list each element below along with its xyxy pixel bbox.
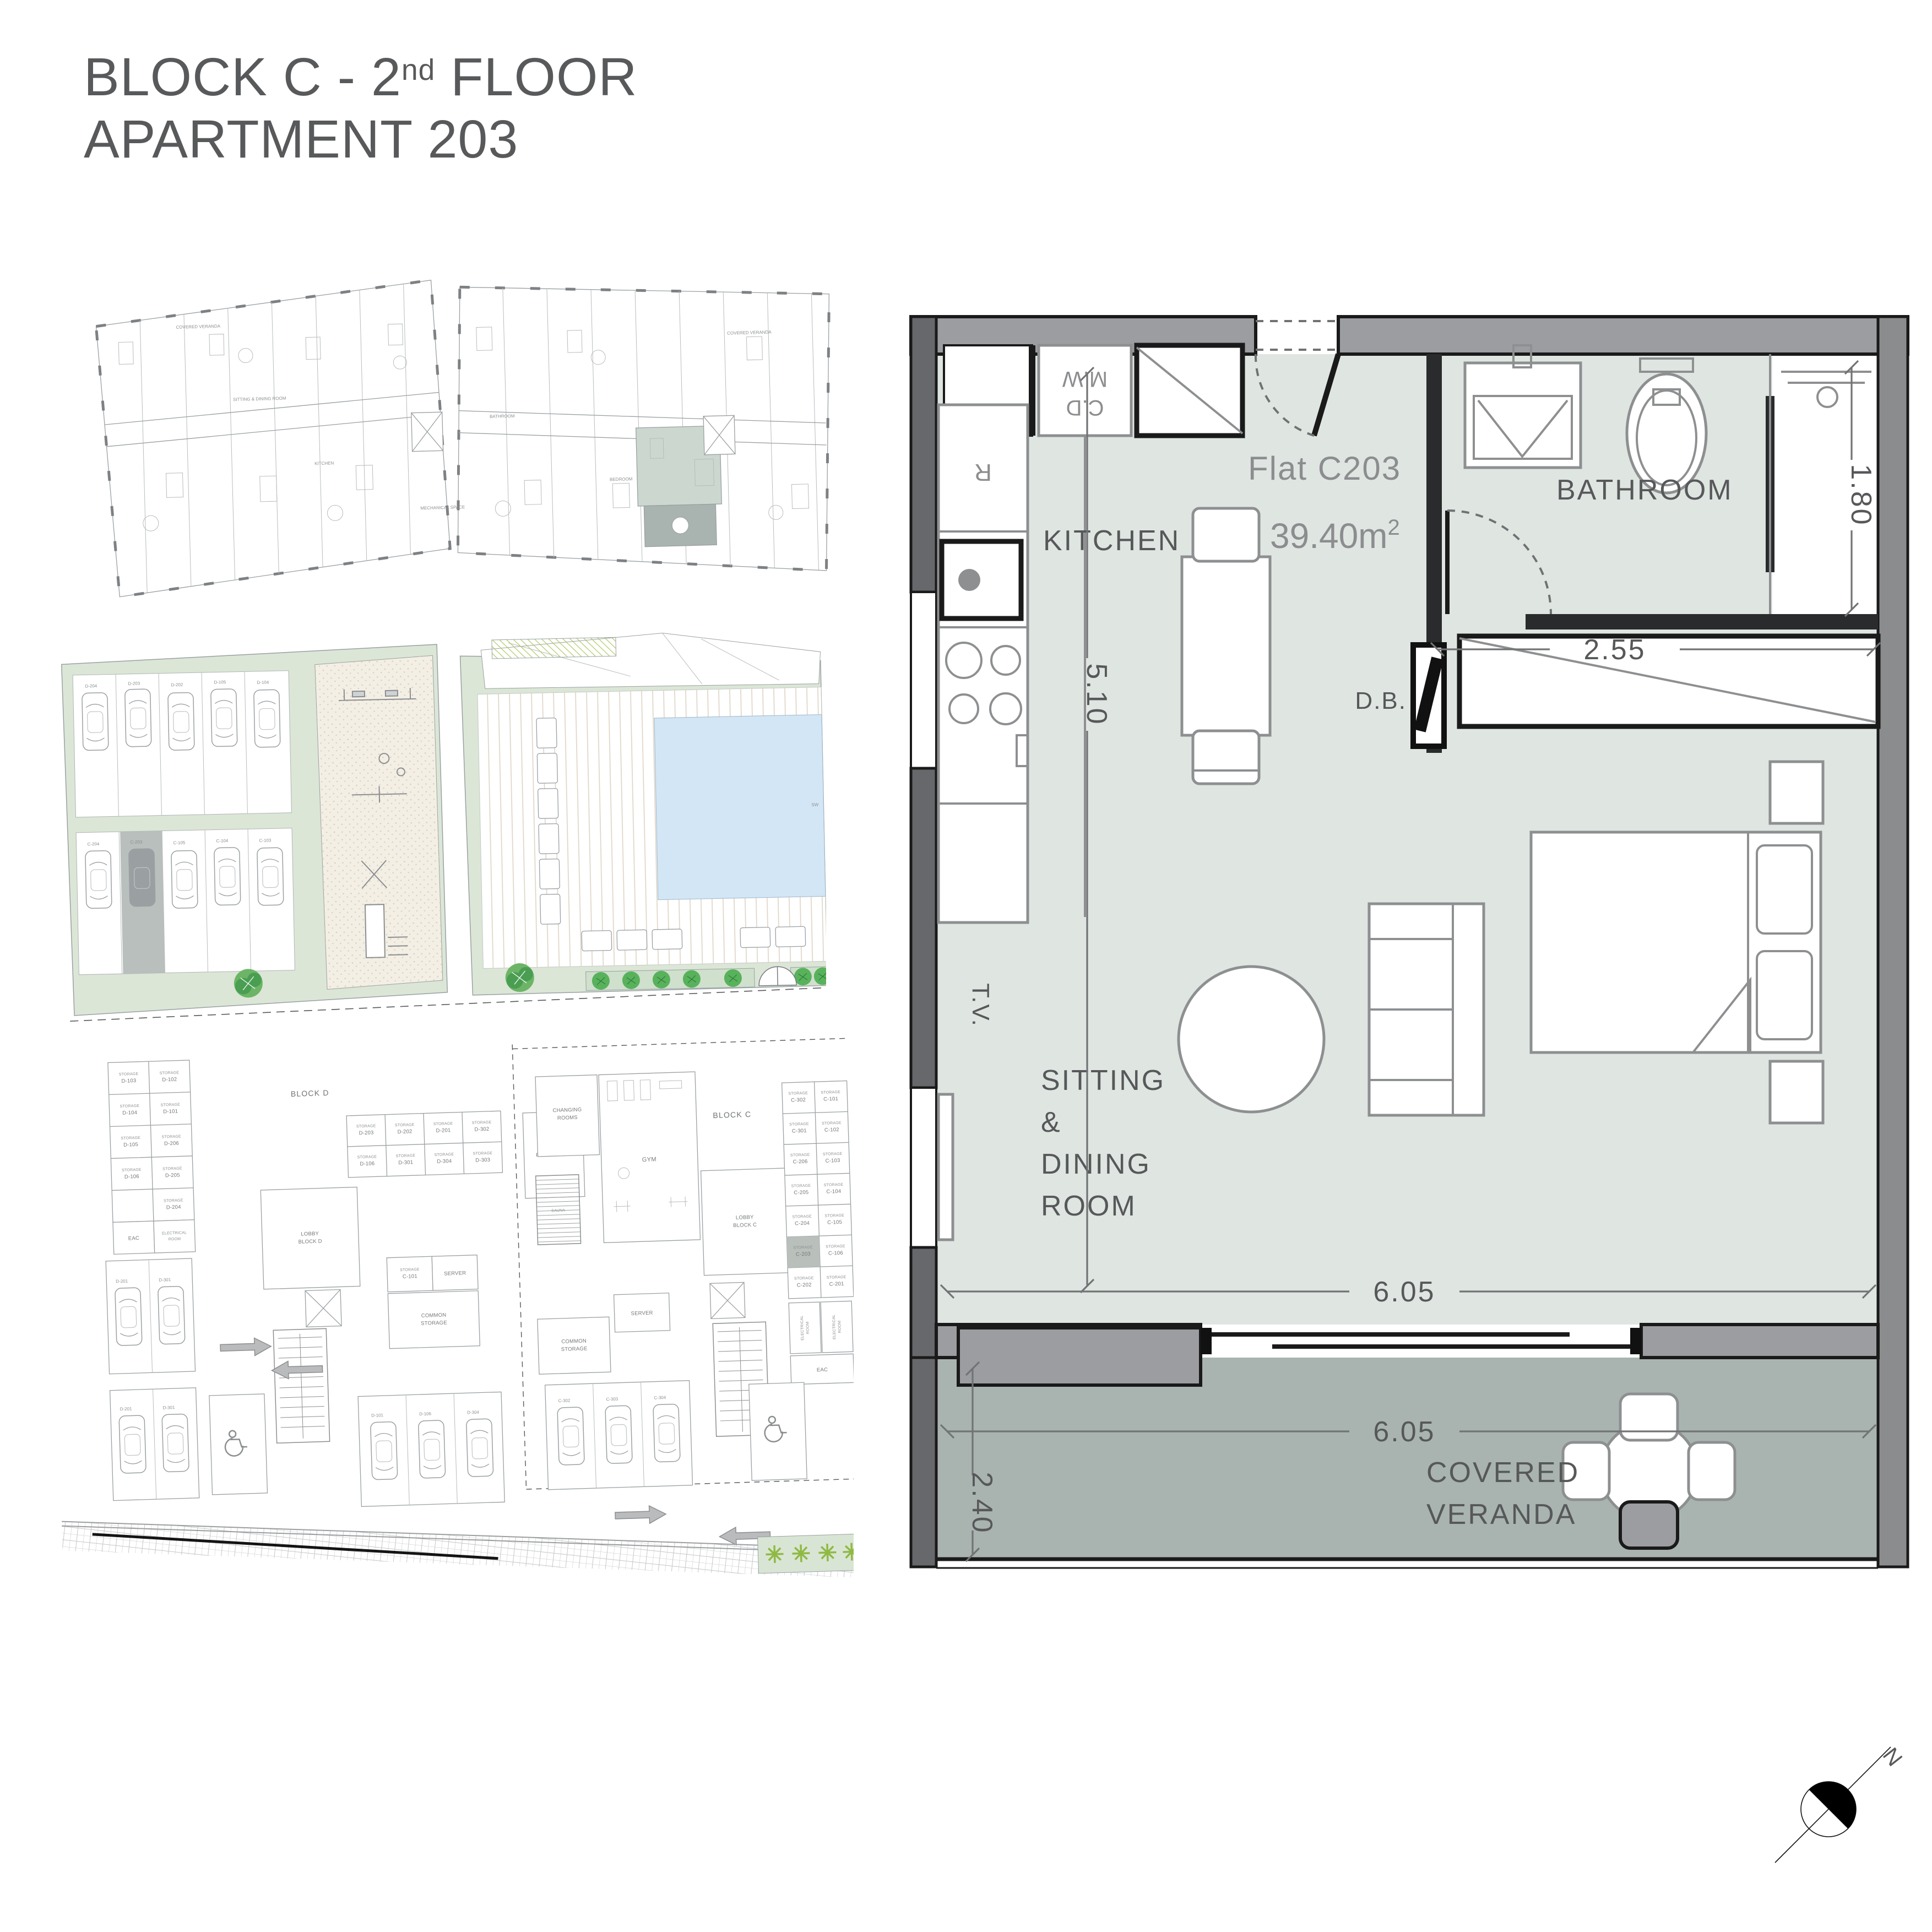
stall-label: D-104 — [257, 680, 269, 685]
thumb-label: SITTING & DINING ROOM — [233, 396, 286, 403]
lobby-c: LOBBYBLOCK C — [701, 1168, 790, 1276]
flat-number-label: Flat C203 — [1248, 450, 1401, 487]
svg-text:STORAGEC-203: STORAGEC-203 — [793, 1246, 813, 1258]
svg-text:STORAGEC-103: STORAGEC-103 — [823, 1152, 843, 1164]
storage-grid-c: STORAGEC-302 STORAGEC-101 STORAGEC-301 S… — [782, 1081, 854, 1299]
cooker-dryer-label: C.D — [1066, 395, 1104, 420]
svg-text:C-302: C-302 — [558, 1398, 571, 1403]
basement-plan-thumbnail: BLOCK D STORAGED-103 STORAGED-102 STORAG… — [55, 1013, 854, 1597]
svg-text:STORAGEC-101: STORAGEC-101 — [400, 1268, 420, 1280]
roadside-plants — [757, 1534, 854, 1573]
area-label: 39.40m2 — [1270, 515, 1400, 556]
sitting-room-label: SITTING — [1041, 1065, 1165, 1097]
svg-text:STORAGED-304: STORAGED-304 — [435, 1153, 454, 1165]
svg-text:SERVER: SERVER — [631, 1310, 653, 1317]
thumb-label: BATHROOM — [490, 414, 515, 419]
svg-text:STORAGED-101: STORAGED-101 — [160, 1103, 180, 1115]
stall-label: C-104 — [216, 838, 229, 843]
sofa — [1369, 904, 1484, 1115]
svg-text:STORAGEC-101: STORAGEC-101 — [821, 1090, 840, 1103]
kitchen-label: KITCHEN — [1043, 525, 1180, 557]
svg-text:STORAGEC-106: STORAGEC-106 — [826, 1245, 845, 1257]
distribution-board-label: D.B. — [1355, 687, 1407, 714]
svg-text:STORAGEC-302: STORAGEC-302 — [788, 1092, 808, 1104]
stall-label: C-103 — [259, 838, 272, 843]
changing-rooms: CHANGINGROOMS — [535, 1075, 599, 1157]
swimming-pool — [654, 714, 826, 899]
block-c: BLOCK C CHANGINGROOMS SAUNA GYM LOBBYBLO… — [530, 1067, 854, 1551]
svg-text:D-201: D-201 — [120, 1406, 132, 1412]
svg-text:2.40: 2.40 — [966, 1472, 998, 1534]
parking-c: C-302 C-303 C-304 — [545, 1377, 807, 1490]
svg-text:STORAGEC-201: STORAGEC-201 — [827, 1276, 846, 1288]
svg-text:C-303: C-303 — [606, 1397, 618, 1402]
nightstand — [1770, 1061, 1823, 1123]
stall-label: D-202 — [171, 682, 183, 687]
title-block-prefix: BLOCK C - 2 — [84, 47, 401, 107]
svg-text:1.80: 1.80 — [1845, 464, 1877, 526]
playground — [315, 655, 443, 989]
tv-wall-niche — [911, 1088, 936, 1247]
thumb-label: COVERED VERANDA — [727, 330, 772, 336]
title-line-apartment: APARTMENT 203 — [84, 108, 637, 171]
svg-text:2.55: 2.55 — [1583, 634, 1646, 666]
stall-label: C-105 — [173, 840, 186, 845]
dining-table-chairs — [1182, 508, 1270, 784]
tv-label: T.V. — [967, 983, 994, 1027]
svg-text:STORAGEC-204: STORAGEC-204 — [792, 1215, 812, 1227]
road — [62, 1496, 854, 1597]
svg-text:STORAGEC-105: STORAGEC-105 — [824, 1214, 844, 1226]
common-server-c: COMMONSTORAGE SERVER — [537, 1293, 671, 1374]
nightstand — [1770, 762, 1823, 823]
lobby-d: LOBBYBLOCK D — [261, 1187, 360, 1289]
stall-label: C-203 — [130, 839, 143, 844]
sliding-window — [1201, 1328, 1641, 1354]
svg-text:STORAGED-106: STORAGED-106 — [357, 1155, 377, 1167]
svg-text:EAC: EAC — [817, 1367, 828, 1374]
svg-text:SAUNA: SAUNA — [551, 1209, 565, 1213]
svg-text:VERANDA: VERANDA — [1426, 1499, 1576, 1531]
svg-text:STORAGED-206: STORAGED-206 — [161, 1135, 181, 1147]
round-rug — [1179, 967, 1324, 1112]
svg-text:SERVER: SERVER — [444, 1270, 466, 1277]
fridge-label: R — [973, 459, 992, 486]
veranda-floor — [936, 1358, 1878, 1559]
svg-text:ROOM: ROOM — [1041, 1190, 1137, 1222]
storage-c101-server-common: STORAGEC-101 SERVER COMMONSTORAGE — [387, 1255, 480, 1349]
parking-row-top: D-204 D-203 D-202 D-105 D-104 — [73, 671, 291, 817]
title-line-block: BLOCK C - 2nd FLOOR — [84, 46, 637, 108]
svg-text:&: & — [1041, 1106, 1062, 1138]
eac-electrical-d: EAC ELECTRICALROOM — [113, 1220, 196, 1255]
site-plan-thumbnail: D-204 D-203 D-202 D-105 D-104 C-204 C-20… — [55, 628, 826, 1024]
stall-label: D-203 — [128, 681, 140, 686]
bathroom-label: BATHROOM — [1556, 474, 1733, 506]
gym: GYM — [599, 1072, 700, 1242]
svg-text:DINING: DINING — [1041, 1148, 1151, 1180]
block-c-label: BLOCK C — [713, 1110, 751, 1120]
bed — [1531, 832, 1821, 1052]
svg-text:STORAGEC-301: STORAGEC-301 — [789, 1122, 809, 1135]
building-roof — [481, 629, 821, 691]
svg-text:D-106: D-106 — [419, 1411, 432, 1417]
storage-grid-d-mid: STORAGED-203 STORAGED-202 STORAGED-201 S… — [346, 1111, 502, 1177]
building-floor-plan-thumbnail: COVERED VERANDA COVERED VERANDA SITTING … — [83, 251, 854, 625]
svg-text:STORAGED-301: STORAGED-301 — [396, 1154, 416, 1166]
svg-text:STORAGEC-205: STORAGEC-205 — [791, 1184, 811, 1196]
pool-parcel: SW — [460, 629, 826, 995]
svg-text:STORAGED-106: STORAGED-106 — [122, 1168, 142, 1180]
svg-text:STORAGED-201: STORAGED-201 — [433, 1122, 453, 1134]
svg-text:C-304: C-304 — [654, 1395, 666, 1401]
parking-row-bottom: C-204 C-203 C-105 C-104 C-103 — [76, 828, 295, 975]
svg-text:D-201: D-201 — [116, 1279, 128, 1284]
svg-text:STORAGED-204: STORAGED-204 — [164, 1198, 183, 1211]
sauna: SAUNA — [536, 1175, 581, 1245]
svg-text:D-301: D-301 — [162, 1405, 175, 1410]
chair — [1193, 731, 1259, 784]
thumb-label: KITCHEN — [314, 460, 334, 466]
wing-left — [92, 273, 453, 602]
svg-text:STORAGED-202: STORAGED-202 — [395, 1123, 415, 1135]
chair — [1193, 508, 1259, 561]
chair — [1689, 1442, 1735, 1500]
eac-electrical-c: ELECTRICALROOM ELECTRICALROOM EAC — [789, 1301, 854, 1385]
thumb-label: COVERED VERANDA — [176, 324, 220, 330]
floorplan-page: { "title": { "block_line_prefix": "BLOCK… — [0, 0, 1932, 1932]
parcel-boundary — [512, 1044, 526, 1490]
title-ordinal-sup: nd — [401, 54, 435, 86]
svg-text:STORAGED-104: STORAGED-104 — [120, 1104, 140, 1116]
svg-text:STORAGED-103: STORAGED-103 — [119, 1072, 139, 1084]
distribution-board — [1413, 645, 1444, 746]
svg-text:D-301: D-301 — [159, 1277, 171, 1283]
svg-text:5.10: 5.10 — [1081, 663, 1112, 725]
north-label: N — [1878, 1743, 1907, 1771]
kitchen-sink — [942, 541, 1021, 618]
svg-text:STORAGEC-206: STORAGEC-206 — [790, 1153, 810, 1165]
chair — [1620, 1394, 1678, 1440]
svg-text:STORAGED-203: STORAGED-203 — [356, 1124, 376, 1136]
svg-text:GYM: GYM — [642, 1156, 657, 1163]
svg-text:STORAGED-302: STORAGED-302 — [472, 1121, 492, 1133]
storage-grid-d-left: STORAGED-103 STORAGED-102 STORAGED-104 S… — [108, 1060, 194, 1223]
svg-text:6.05: 6.05 — [1373, 1276, 1435, 1308]
svg-text:6.05: 6.05 — [1373, 1416, 1435, 1448]
pool-label: SW — [811, 802, 819, 807]
stall-label: D-204 — [85, 683, 97, 688]
north-compass-icon: N — [1754, 1716, 1919, 1881]
stall-label: C-204 — [87, 842, 100, 846]
svg-text:STORAGED-205: STORAGED-205 — [162, 1166, 182, 1179]
kitchen-window — [911, 592, 936, 768]
bathroom-sink — [1465, 345, 1581, 468]
chair — [1620, 1502, 1678, 1548]
title-block-suffix: FLOOR — [435, 47, 637, 107]
svg-text:D-304: D-304 — [467, 1410, 480, 1415]
apartment-plan: M.W C.D R KITCHEN Flat C203 39.40m2 — [909, 295, 1911, 1589]
stall-label: D-105 — [214, 680, 226, 685]
svg-text:STORAGED-102: STORAGED-102 — [160, 1071, 180, 1083]
thumb-label: BEDROOM — [610, 476, 633, 482]
svg-text:EAC: EAC — [128, 1235, 139, 1242]
microwave-label: M.W — [1062, 367, 1108, 391]
veranda-label: COVERED — [1426, 1457, 1580, 1489]
wing-right — [451, 269, 837, 590]
svg-text:D-101: D-101 — [371, 1413, 384, 1418]
svg-text:STORAGED-303: STORAGED-303 — [473, 1152, 493, 1164]
svg-text:STORAGEC-104: STORAGEC-104 — [824, 1183, 844, 1195]
page-title: BLOCK C - 2nd FLOOR APARTMENT 203 — [84, 46, 637, 170]
block-d: BLOCK D STORAGED-103 STORAGED-102 STORAG… — [100, 1048, 594, 1515]
svg-text:STORAGED-105: STORAGED-105 — [121, 1136, 140, 1148]
parking-parcel: D-204 D-203 D-202 D-105 D-104 C-204 C-20… — [61, 644, 448, 1016]
block-d-label: BLOCK D — [291, 1088, 329, 1098]
svg-text:STORAGEC-202: STORAGEC-202 — [794, 1276, 814, 1288]
svg-text:STORAGEC-102: STORAGEC-102 — [822, 1121, 842, 1133]
